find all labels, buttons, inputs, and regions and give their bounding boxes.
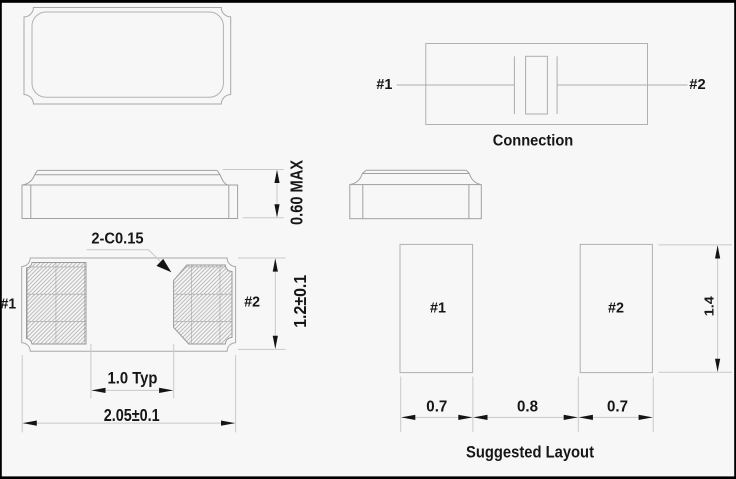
svg-text:Suggested Layout: Suggested Layout xyxy=(466,443,594,461)
svg-text:2-C0.15: 2-C0.15 xyxy=(91,231,144,248)
svg-text:#1: #1 xyxy=(1,297,17,313)
svg-text:1.2±0.1: 1.2±0.1 xyxy=(290,275,310,328)
svg-text:#2: #2 xyxy=(689,76,705,93)
svg-text:#1: #1 xyxy=(430,300,446,316)
svg-text:0.8: 0.8 xyxy=(517,398,538,415)
svg-text:#2: #2 xyxy=(244,295,260,311)
svg-text:Connection: Connection xyxy=(493,133,574,150)
svg-text:1.0 Typ: 1.0 Typ xyxy=(108,369,158,388)
svg-text:#2: #2 xyxy=(608,301,624,317)
svg-text:1.4: 1.4 xyxy=(701,295,716,316)
svg-text:2.05±0.1: 2.05±0.1 xyxy=(104,405,160,425)
svg-text:#1: #1 xyxy=(376,76,392,93)
svg-text:0.7: 0.7 xyxy=(607,398,628,415)
svg-text:0.7: 0.7 xyxy=(426,398,447,415)
svg-text:0.60 MAX: 0.60 MAX xyxy=(286,160,306,225)
